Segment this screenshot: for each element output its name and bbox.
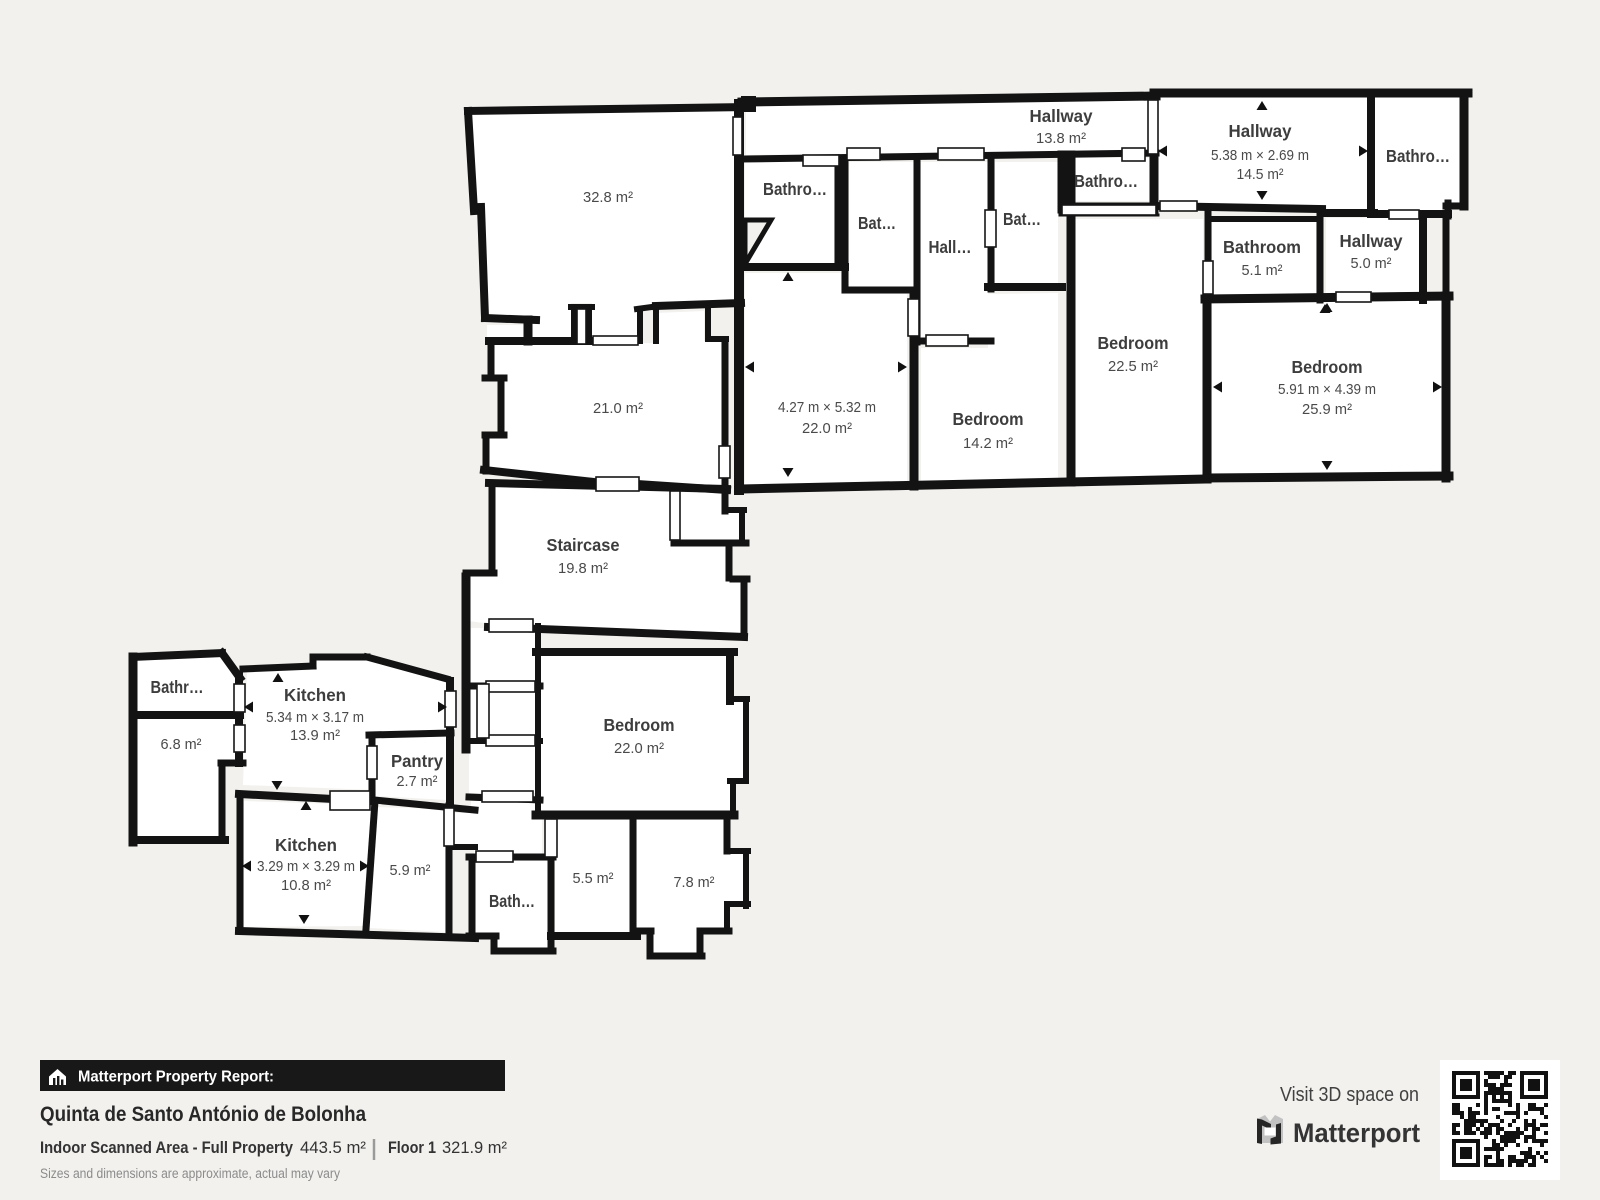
svg-text:Matterport Property Report:: Matterport Property Report: <box>78 1069 274 1086</box>
svg-text:5.34 m × 3.17 m: 5.34 m × 3.17 m <box>266 709 364 726</box>
svg-text:Matterport: Matterport <box>1293 1118 1420 1148</box>
svg-text:Quinta de Santo António de Bol: Quinta de Santo António de Bolonha <box>40 1103 366 1126</box>
svg-text:Hallway: Hallway <box>1030 106 1093 126</box>
svg-text:Bathroom: Bathroom <box>1223 237 1301 257</box>
svg-text:Bathro…: Bathro… <box>1386 146 1450 166</box>
svg-text:4.27 m × 5.32 m: 4.27 m × 5.32 m <box>778 399 876 416</box>
svg-text:Kitchen: Kitchen <box>284 685 346 705</box>
svg-text:Bathr…: Bathr… <box>151 677 204 697</box>
svg-text:10.8 m²: 10.8 m² <box>281 877 331 894</box>
svg-text:21.0 m²: 21.0 m² <box>593 400 643 417</box>
svg-text:Visit 3D space on: Visit 3D space on <box>1280 1084 1419 1106</box>
svg-text:5.5 m²: 5.5 m² <box>573 870 614 887</box>
svg-text:Bedroom: Bedroom <box>953 409 1024 429</box>
svg-text:Bath…: Bath… <box>489 891 535 911</box>
svg-text:22.5 m²: 22.5 m² <box>1108 358 1158 375</box>
svg-text:32.8 m²: 32.8 m² <box>583 189 633 206</box>
svg-text:Bedroom: Bedroom <box>604 715 675 735</box>
svg-text:Hallway: Hallway <box>1340 231 1403 251</box>
svg-text:2.7 m²: 2.7 m² <box>397 773 438 790</box>
svg-text:5.91 m × 4.39 m: 5.91 m × 4.39 m <box>1278 381 1376 398</box>
svg-text:6.8 m²: 6.8 m² <box>161 736 202 753</box>
svg-text:321.9 m²: 321.9 m² <box>442 1139 507 1157</box>
svg-text:Bathro…: Bathro… <box>763 179 827 199</box>
svg-text:443.5 m²: 443.5 m² <box>300 1139 367 1157</box>
svg-text:5.0 m²: 5.0 m² <box>1351 255 1392 272</box>
svg-text:Pantry: Pantry <box>391 751 443 771</box>
svg-text:25.9 m²: 25.9 m² <box>1302 401 1352 418</box>
svg-text:22.0 m²: 22.0 m² <box>802 420 852 437</box>
svg-text:Indoor Scanned Area - Full Pro: Indoor Scanned Area - Full Property <box>40 1139 294 1157</box>
svg-text:Floor 1: Floor 1 <box>388 1139 436 1157</box>
svg-text:5.38 m × 2.69 m: 5.38 m × 2.69 m <box>1211 147 1309 164</box>
svg-text:Hall…: Hall… <box>929 237 972 257</box>
svg-text:Kitchen: Kitchen <box>275 835 337 855</box>
svg-text:Bat…: Bat… <box>858 213 896 233</box>
svg-text:5.9 m²: 5.9 m² <box>390 862 431 879</box>
svg-text:14.2 m²: 14.2 m² <box>963 435 1013 452</box>
svg-text:19.8 m²: 19.8 m² <box>558 560 608 577</box>
svg-text:13.9 m²: 13.9 m² <box>290 727 340 744</box>
svg-text:14.5 m²: 14.5 m² <box>1237 166 1284 183</box>
svg-text:7.8 m²: 7.8 m² <box>674 874 715 891</box>
svg-text:Bedroom: Bedroom <box>1098 333 1169 353</box>
svg-text:3.29 m × 3.29 m: 3.29 m × 3.29 m <box>257 858 355 875</box>
svg-text:5.1 m²: 5.1 m² <box>1242 262 1283 279</box>
svg-text:13.8 m²: 13.8 m² <box>1036 130 1086 147</box>
svg-text:Bathro…: Bathro… <box>1074 171 1138 191</box>
svg-text:22.0 m²: 22.0 m² <box>614 740 664 757</box>
svg-text:Bat…: Bat… <box>1003 209 1041 229</box>
svg-text:Staircase: Staircase <box>547 535 620 555</box>
svg-text:Sizes and dimensions are appro: Sizes and dimensions are approximate, ac… <box>40 1166 340 1181</box>
svg-text:Bedroom: Bedroom <box>1292 357 1363 377</box>
svg-text:Hallway: Hallway <box>1229 121 1292 141</box>
